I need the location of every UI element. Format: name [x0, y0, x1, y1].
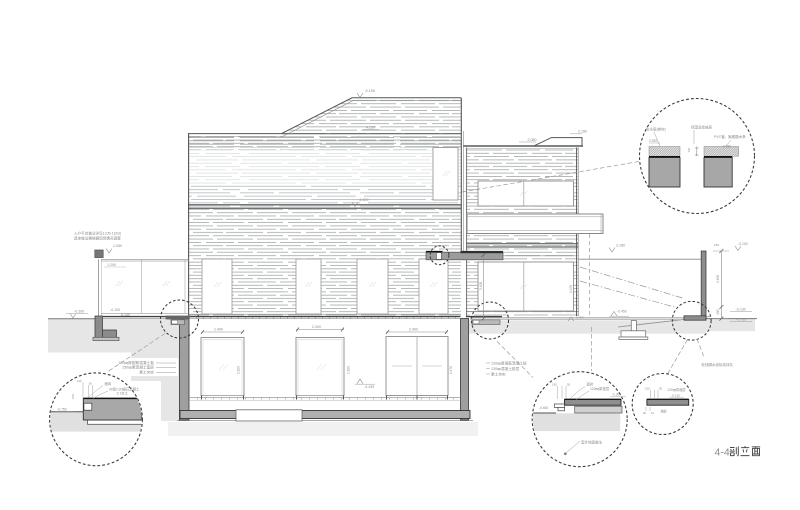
svg-text:3:7灰土: 3:7灰土 [117, 391, 129, 396]
svg-text:1.400: 1.400 [214, 328, 223, 332]
svg-text:5.190: 5.190 [366, 89, 376, 93]
svg-text:-1.300: -1.300 [612, 393, 621, 397]
svg-text:1.200: 1.200 [107, 263, 116, 267]
svg-text:-0.130: -0.130 [736, 308, 746, 312]
svg-text:150: 150 [714, 243, 719, 247]
svg-text:2.470: 2.470 [449, 366, 453, 374]
svg-text:-0.750: -0.750 [736, 318, 746, 322]
svg-text:2.630: 2.630 [716, 275, 720, 283]
svg-text:120㎜厚面层: 120㎜厚面层 [668, 387, 686, 392]
svg-text:-0.450: -0.450 [575, 315, 584, 319]
svg-text:4.130: 4.130 [366, 125, 375, 129]
svg-text:2.180: 2.180 [578, 130, 587, 134]
svg-text:450: 450 [716, 309, 720, 315]
svg-text:-0.100: -0.100 [738, 242, 748, 246]
svg-text:60: 60 [643, 411, 647, 415]
svg-text:50: 50 [567, 382, 571, 386]
svg-text:3.180: 3.180 [616, 244, 625, 248]
svg-text:具体做法需根据现场情况调整: 具体做法需根据现场情况调整 [74, 236, 121, 241]
svg-text:150: 150 [552, 382, 557, 386]
svg-text:-0.450: -0.450 [539, 406, 548, 410]
svg-text:-3.430: -3.430 [364, 385, 374, 389]
svg-text:50: 50 [89, 381, 93, 385]
svg-text:150㎜素混凝土垫层: 150㎜素混凝土垫层 [122, 365, 154, 370]
svg-text:-0.450: -0.450 [617, 310, 627, 314]
svg-text:海砂: 海砂 [661, 409, 668, 414]
svg-text:室外地面做法: 室外地面做法 [581, 440, 602, 445]
svg-text:2.930: 2.930 [723, 144, 731, 148]
svg-text:150: 150 [645, 386, 650, 390]
svg-text:4.400: 4.400 [359, 198, 369, 202]
svg-text:素土夯实: 素土夯实 [139, 369, 154, 374]
svg-text:2.470: 2.470 [569, 285, 573, 293]
svg-text:-0.750: -0.750 [57, 408, 67, 412]
svg-text:-0.130: -0.130 [671, 393, 680, 397]
svg-text:2.400: 2.400 [409, 328, 418, 332]
svg-text:150: 150 [71, 394, 75, 399]
svg-text:2.930: 2.930 [649, 139, 657, 143]
svg-text:140: 140 [687, 147, 691, 152]
svg-text:防水层(卷材): 防水层(卷材) [646, 127, 666, 132]
svg-text:130㎜混凝土垫层: 130㎜混凝土垫层 [491, 366, 520, 371]
svg-text:PVC管、聚氨酯木条: PVC管、聚氨酯木条 [714, 134, 746, 139]
svg-text:-0.300: -0.300 [74, 310, 84, 314]
svg-text:2.100: 2.100 [237, 366, 241, 374]
svg-text:-0.100: -0.100 [110, 308, 120, 312]
svg-text:2.080: 2.080 [528, 138, 537, 142]
svg-text:入户平台做法详见13J5-1(3/3): 入户平台做法详见13J5-1(3/3) [74, 231, 121, 236]
svg-text:50: 50 [659, 386, 663, 390]
svg-text:2.400: 2.400 [479, 282, 483, 290]
svg-text:130㎜厚钢筋混凝土板: 130㎜厚钢筋混凝土板 [491, 361, 527, 366]
svg-text:10: 10 [651, 411, 655, 415]
svg-text:面砖: 面砖 [105, 381, 112, 386]
svg-text:面砖: 面砖 [587, 382, 594, 387]
svg-text:120㎜厚垫层: 120㎜厚垫层 [590, 386, 610, 391]
svg-text:素土夯实: 素土夯实 [491, 372, 506, 377]
svg-text:110: 110 [77, 379, 82, 383]
svg-text:2.100: 2.100 [347, 366, 351, 374]
svg-text:砼线脚水泥砂浆抹灰: 砼线脚水泥砂浆抹灰 [702, 362, 734, 367]
svg-text:保温及找坡层: 保温及找坡层 [691, 125, 712, 130]
svg-text:4-4: 4-4 [715, 447, 730, 459]
svg-text:2.000: 2.000 [312, 325, 321, 329]
svg-text:1.050: 1.050 [113, 244, 122, 248]
